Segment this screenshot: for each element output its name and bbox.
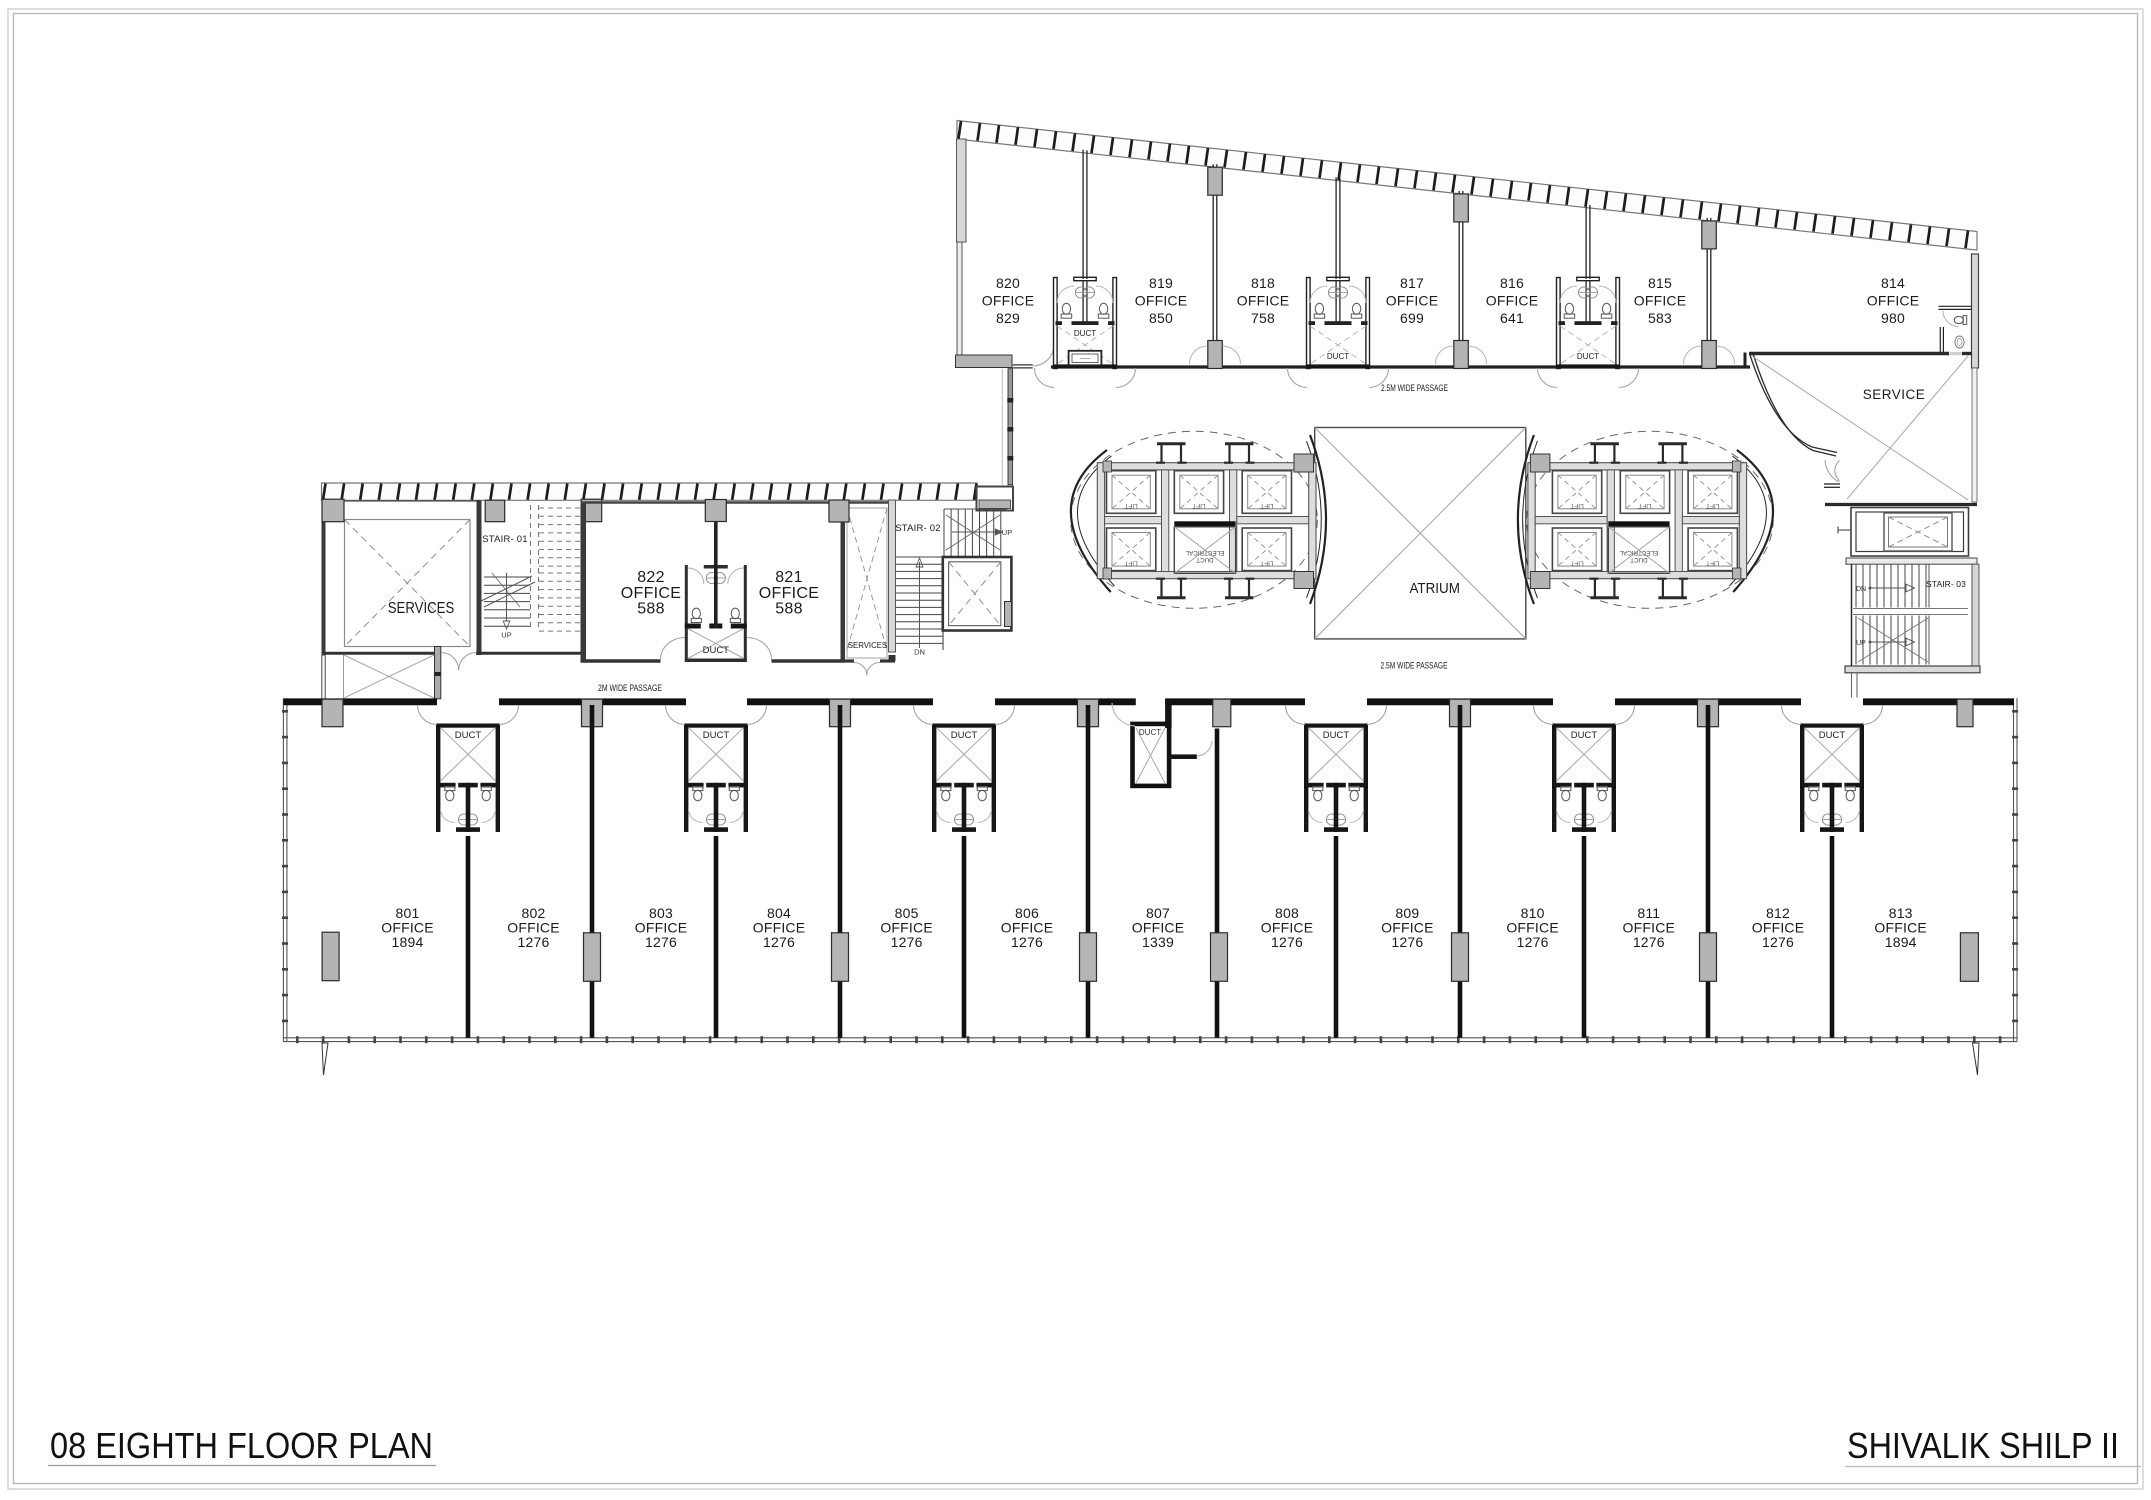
svg-text:641: 641 [1500, 310, 1524, 326]
svg-text:LIFT: LIFT [1706, 502, 1719, 509]
svg-text:DUCT: DUCT [1327, 352, 1349, 361]
svg-text:1276: 1276 [891, 934, 923, 950]
svg-text:814: 814 [1881, 275, 1905, 291]
svg-text:STAIR- 02: STAIR- 02 [895, 523, 940, 534]
svg-text:LIFT: LIFT [1638, 502, 1651, 509]
svg-text:1276: 1276 [763, 934, 795, 950]
svg-text:1276: 1276 [1271, 934, 1303, 950]
svg-text:STAIR- 01: STAIR- 01 [482, 534, 527, 545]
svg-text:DUCT: DUCT [703, 645, 730, 656]
svg-text:LIFT: LIFT [1124, 502, 1137, 509]
svg-text:1276: 1276 [518, 934, 550, 950]
svg-text:583: 583 [1648, 310, 1672, 326]
svg-text:822: 822 [637, 569, 665, 586]
svg-text:OFFICE: OFFICE [621, 585, 681, 602]
svg-text:OFFICE: OFFICE [1867, 293, 1920, 309]
svg-text:980: 980 [1881, 310, 1905, 326]
svg-text:SHIVALIK SHILP II: SHIVALIK SHILP II [1847, 1425, 2119, 1466]
svg-text:588: 588 [637, 601, 665, 618]
svg-text:OFFICE: OFFICE [759, 585, 819, 602]
svg-text:1894: 1894 [392, 934, 424, 950]
svg-text:ATRIUM: ATRIUM [1409, 581, 1460, 597]
svg-text:DUCT: DUCT [1577, 352, 1599, 361]
svg-text:DN: DN [914, 648, 925, 657]
svg-text:OFFICE: OFFICE [1386, 293, 1439, 309]
svg-text:2M WIDE PASSAGE: 2M WIDE PASSAGE [598, 683, 662, 694]
svg-text:819: 819 [1149, 275, 1173, 291]
svg-text:LIFT: LIFT [1124, 560, 1137, 567]
svg-text:OFFICE: OFFICE [1634, 293, 1687, 309]
svg-text:UP: UP [501, 631, 511, 640]
svg-text:LIFT: LIFT [1706, 560, 1719, 567]
svg-text:1276: 1276 [1633, 934, 1665, 950]
svg-text:2.5M WIDE PASSAGE: 2.5M WIDE PASSAGE [1381, 383, 1448, 394]
svg-text:ELECTRICAL: ELECTRICAL [1185, 549, 1224, 556]
svg-text:LIFT: LIFT [1260, 560, 1273, 567]
svg-text:STAIR- 03: STAIR- 03 [1926, 579, 1966, 589]
svg-text:DUCT: DUCT [1819, 730, 1846, 741]
svg-text:OFFICE: OFFICE [1486, 293, 1539, 309]
svg-text:850: 850 [1149, 310, 1173, 326]
svg-text:SERVICE: SERVICE [1863, 387, 1926, 402]
svg-text:DUCT: DUCT [1196, 556, 1214, 563]
svg-text:1276: 1276 [1762, 934, 1794, 950]
svg-text:DUCT: DUCT [951, 730, 978, 741]
svg-text:699: 699 [1400, 310, 1424, 326]
svg-text:DUCT: DUCT [1571, 730, 1598, 741]
svg-text:DUCT: DUCT [1074, 329, 1096, 338]
svg-text:DUCT: DUCT [1630, 556, 1648, 563]
svg-text:820: 820 [996, 275, 1020, 291]
svg-text:2.5M WIDE PASSAGE: 2.5M WIDE PASSAGE [1381, 661, 1448, 672]
svg-text:818: 818 [1251, 275, 1275, 291]
svg-text:1276: 1276 [1517, 934, 1549, 950]
svg-text:LIFT: LIFT [1570, 502, 1583, 509]
svg-text:817: 817 [1400, 275, 1424, 291]
svg-text:588: 588 [775, 601, 803, 618]
svg-text:815: 815 [1648, 275, 1672, 291]
svg-text:1276: 1276 [1391, 934, 1423, 950]
svg-text:758: 758 [1251, 310, 1275, 326]
svg-text:DN: DN [1856, 586, 1866, 593]
svg-text:1276: 1276 [1011, 934, 1043, 950]
svg-text:LIFT: LIFT [1570, 560, 1583, 567]
svg-text:OFFICE: OFFICE [982, 293, 1035, 309]
svg-text:1339: 1339 [1142, 934, 1174, 950]
svg-text:821: 821 [775, 569, 803, 586]
svg-text:SERVICES: SERVICES [388, 600, 455, 617]
svg-text:1894: 1894 [1885, 934, 1917, 950]
svg-text:OFFICE: OFFICE [1237, 293, 1290, 309]
svg-text:829: 829 [996, 310, 1020, 326]
svg-text:DUCT: DUCT [455, 730, 482, 741]
svg-text:UP: UP [1856, 640, 1866, 647]
svg-text:SERVICES: SERVICES [848, 641, 887, 650]
svg-text:DUCT: DUCT [1139, 728, 1161, 737]
svg-text:DUCT: DUCT [1323, 730, 1350, 741]
svg-text:OFFICE: OFFICE [1135, 293, 1188, 309]
svg-text:816: 816 [1500, 275, 1524, 291]
svg-text:ELECTRICAL: ELECTRICAL [1619, 549, 1658, 556]
svg-text:1276: 1276 [645, 934, 677, 950]
svg-text:LIFT: LIFT [1192, 502, 1205, 509]
svg-text:LIFT: LIFT [1260, 502, 1273, 509]
svg-text:UP: UP [1002, 528, 1012, 537]
svg-text:08 EIGHTH FLOOR PLAN: 08 EIGHTH FLOOR PLAN [50, 1425, 433, 1466]
svg-text:DUCT: DUCT [703, 730, 730, 741]
